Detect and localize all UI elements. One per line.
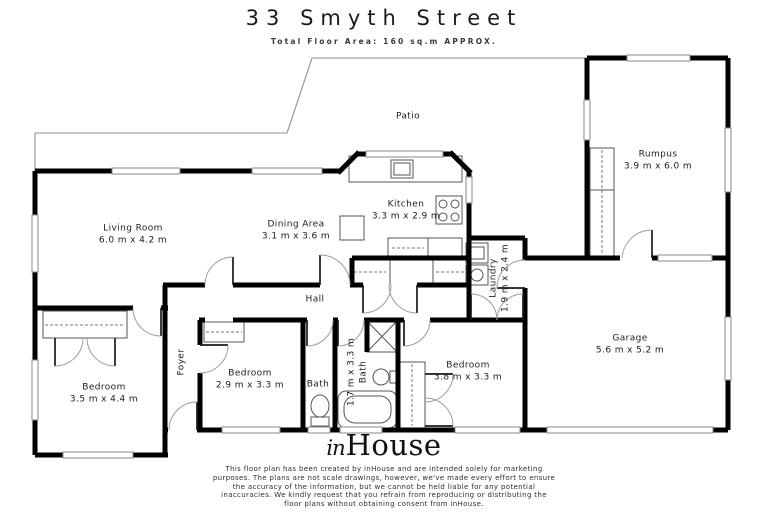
room-label-dining-area: Dining Area 3.1 m x 3.6 m	[262, 220, 330, 243]
room-label-kitchen: Kitchen 3.3 m x 2.9 m	[372, 200, 440, 223]
room-label-bath-main: 1.7 m x 3.3 m Bath	[347, 338, 370, 406]
bath-basin	[373, 369, 389, 385]
room-label-bedroom-1: Bedroom 3.5 m x 4.4 m	[70, 383, 138, 406]
logo-in-script: in	[326, 436, 344, 460]
room-label-rumpus: Rumpus 3.9 m x 6.0 m	[624, 150, 692, 173]
room-label-patio: Patio	[396, 111, 420, 123]
kitchen-bay-window	[366, 151, 443, 157]
room-label-laundry: Laundry 1.9 m x 2.4 m	[489, 244, 512, 312]
room-label-hall: Hall	[306, 294, 325, 306]
inhouse-logo: inHouse	[0, 428, 768, 462]
room-label-bedroom-3: Bedroom 3.8 m x 3.3 m	[434, 361, 502, 384]
hall-closet-dividers	[390, 258, 433, 285]
logo-house-text: House	[346, 428, 442, 462]
room-label-garage: Garage 5.6 m x 5.2 m	[596, 334, 664, 357]
toilet-tank	[311, 417, 329, 426]
room-label-living-room: Living Room 6.0 m x 4.2 m	[99, 224, 167, 247]
room-label-foyer: Foyer	[176, 349, 188, 376]
room-label-bath-small: Bath	[307, 379, 330, 391]
patio-outline	[35, 58, 587, 171]
room-label-bedroom-2: Bedroom 2.9 m x 3.3 m	[216, 369, 284, 392]
kitchen-cabinet	[340, 216, 364, 240]
disclaimer: This floor plan has been created by inHo…	[0, 465, 768, 509]
toilet	[311, 395, 329, 417]
floorplan-page: 33 Smyth Street Total Floor Area: 160 sq…	[0, 0, 768, 512]
